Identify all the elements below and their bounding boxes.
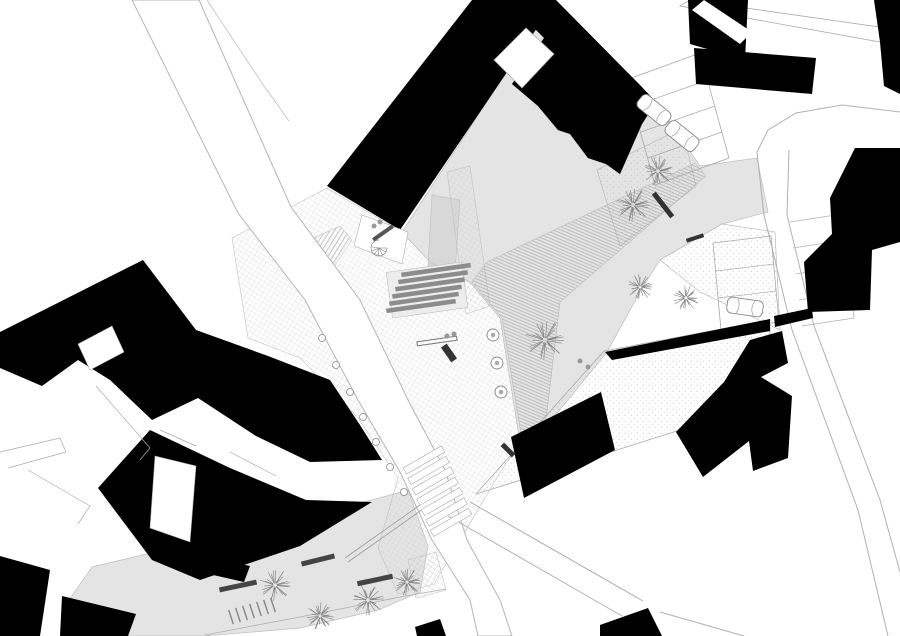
- building-tr-b: [694, 48, 816, 94]
- site-plan-canvas: [0, 0, 900, 636]
- building-wedge-sliver-b: [774, 308, 813, 327]
- structure-lines-west: [28, 470, 90, 506]
- building-corner-south: [600, 608, 662, 636]
- tree-symbol: [674, 286, 698, 309]
- structure-lines-west: [8, 452, 66, 468]
- plan-layers: [0, 0, 900, 636]
- bollard-row: [387, 464, 394, 471]
- bollard-row: [347, 389, 354, 396]
- structure-lines-west: [0, 438, 60, 452]
- bollard-row: [319, 335, 326, 342]
- people-dots: [586, 365, 591, 370]
- people-dots: [378, 220, 383, 225]
- structure-lines-west: [78, 506, 90, 524]
- structure-lines-west: [60, 438, 66, 452]
- bollard-row: [333, 362, 340, 369]
- building-east-stepped: [804, 148, 900, 312]
- site-plan-svg: [0, 0, 900, 636]
- street-south-edge-b: [470, 502, 643, 601]
- people-dots: [445, 334, 450, 339]
- building-sw-corner-a: [0, 556, 50, 636]
- building-south-small: [415, 619, 446, 636]
- people-dots: [578, 359, 583, 364]
- bollard-row: [373, 439, 380, 446]
- tree-pits: [495, 361, 500, 366]
- street-south-edge-c: [660, 612, 744, 636]
- building-west-lower-court: [150, 456, 196, 542]
- street-corner-curve: [757, 105, 900, 152]
- people-dots: [372, 224, 377, 229]
- tree-pits: [499, 390, 504, 395]
- building-edge-ne: [874, 0, 900, 94]
- bollard-row: [401, 489, 408, 496]
- people-dots: [452, 332, 457, 337]
- tree-pits: [491, 333, 496, 338]
- bollard-row: [360, 414, 367, 421]
- parking-stalls-east: [802, 318, 854, 326]
